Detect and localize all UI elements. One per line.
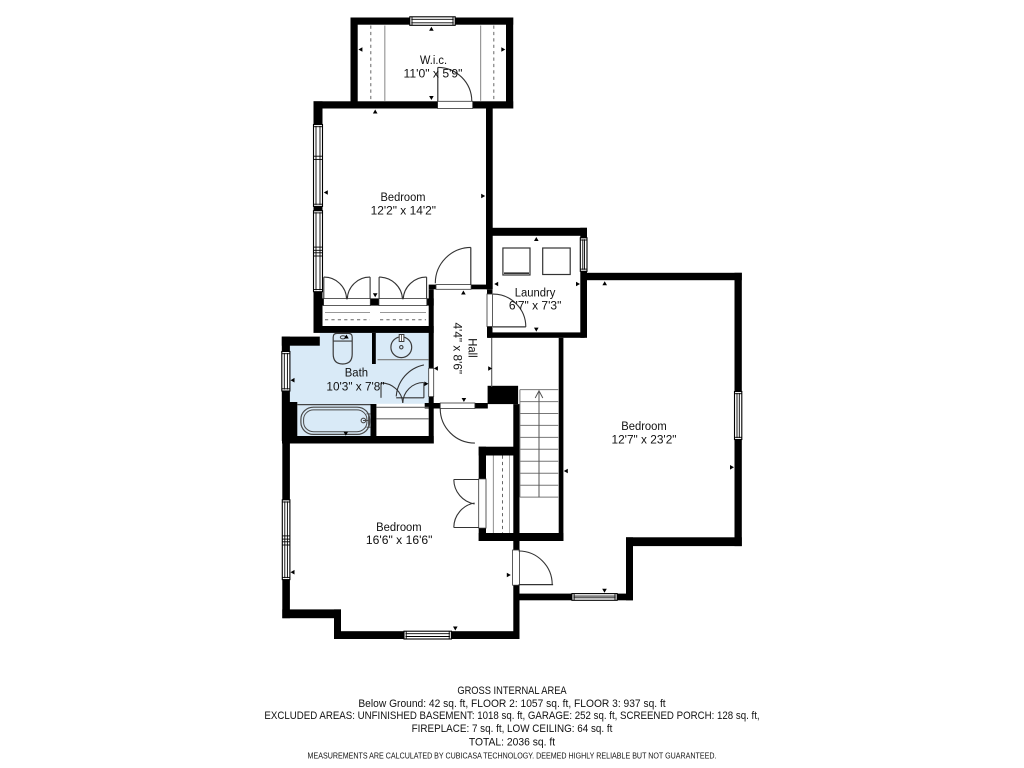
svg-text:W.i.c.: W.i.c. <box>420 55 447 67</box>
svg-text:12'2" x 14'2": 12'2" x 14'2" <box>371 205 436 217</box>
svg-text:Bedroom: Bedroom <box>376 522 422 534</box>
svg-text:4'4" x 8'6": 4'4" x 8'6" <box>450 323 462 375</box>
svg-text:16'6" x 16'6": 16'6" x 16'6" <box>366 535 433 547</box>
svg-text:MEASUREMENTS ARE CALCULATED BY: MEASUREMENTS ARE CALCULATED BY CUBICASA … <box>308 751 717 761</box>
svg-text:Hall: Hall <box>466 338 478 357</box>
svg-text:FIREPLACE: 7 sq. ft, LOW CEILI: FIREPLACE: 7 sq. ft, LOW CEILING: 64 sq.… <box>412 723 613 735</box>
svg-text:11'0" x 5'9": 11'0" x 5'9" <box>404 69 463 81</box>
svg-text:Below Ground: 42 sq. ft, FLOOR: Below Ground: 42 sq. ft, FLOOR 2: 1057 s… <box>358 698 665 710</box>
svg-text:12'7" x 23'2": 12'7" x 23'2" <box>612 435 677 447</box>
svg-text:EXCLUDED AREAS: UNFINISHED BAS: EXCLUDED AREAS: UNFINISHED BASEMENT: 101… <box>264 710 759 722</box>
svg-text:Bedroom: Bedroom <box>381 192 426 204</box>
svg-text:GROSS INTERNAL AREA: GROSS INTERNAL AREA <box>457 685 567 697</box>
svg-text:Bedroom: Bedroom <box>621 421 667 433</box>
svg-text:6'7" x 7'3": 6'7" x 7'3" <box>509 301 562 313</box>
svg-text:Laundry: Laundry <box>515 288 556 300</box>
svg-text:10'3" x 7'8": 10'3" x 7'8" <box>326 382 384 394</box>
svg-text:Bath: Bath <box>345 368 368 380</box>
svg-text:TOTAL: 2036 sq. ft: TOTAL: 2036 sq. ft <box>469 737 555 749</box>
